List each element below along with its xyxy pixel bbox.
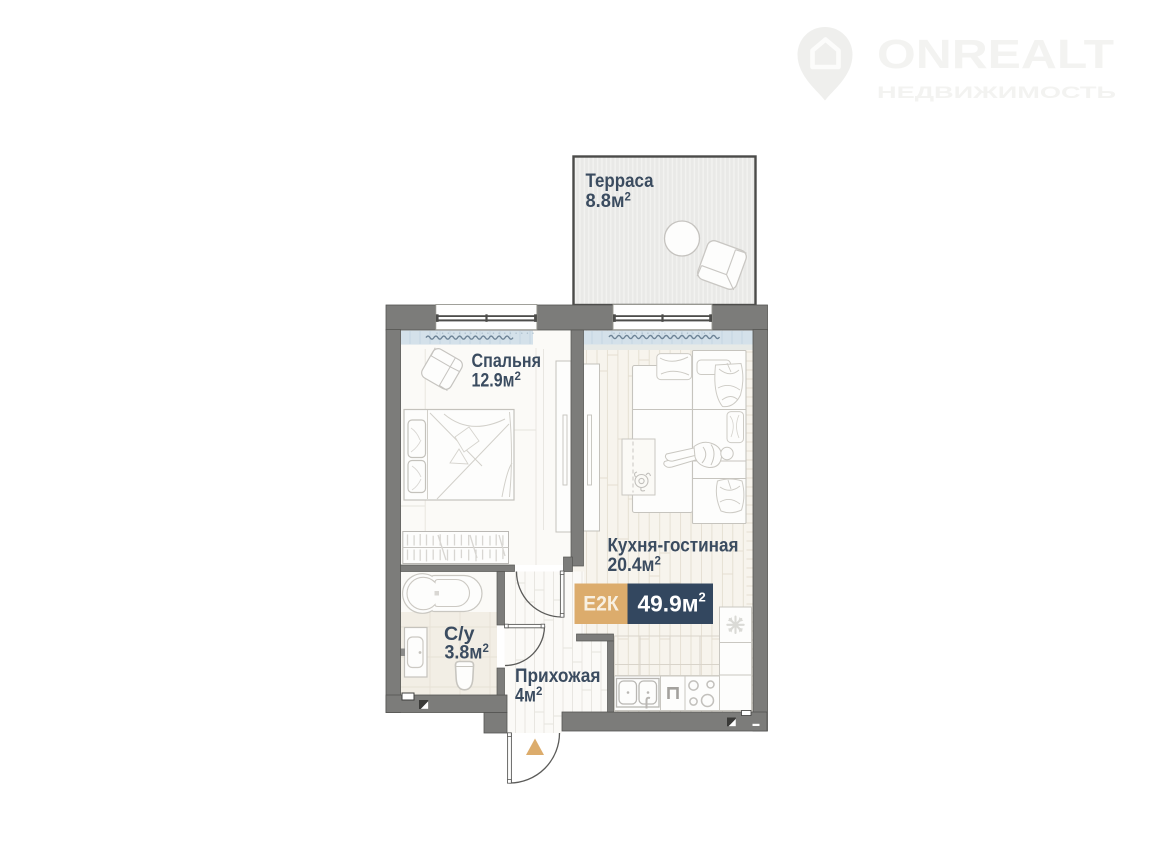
svg-text:20.4м2: 20.4м2 <box>608 555 661 576</box>
svg-text:Прихожая: Прихожая <box>515 666 601 687</box>
svg-text:Кухня-гостиная: Кухня-гостиная <box>608 536 739 557</box>
svg-text:49.9м2: 49.9м2 <box>638 590 706 617</box>
svg-text:Е2К: Е2К <box>583 593 619 616</box>
svg-text:3.8м2: 3.8м2 <box>445 643 489 664</box>
svg-text:12.9м2: 12.9м2 <box>472 371 521 392</box>
svg-text:НЕДВИЖИМОСТЬ: НЕДВИЖИМОСТЬ <box>877 83 1116 102</box>
svg-text:Терраса: Терраса <box>586 171 654 192</box>
svg-text:ONREALT: ONREALT <box>877 31 1114 77</box>
svg-text:8.8м2: 8.8м2 <box>586 191 631 212</box>
svg-text:Спальня: Спальня <box>472 351 542 372</box>
